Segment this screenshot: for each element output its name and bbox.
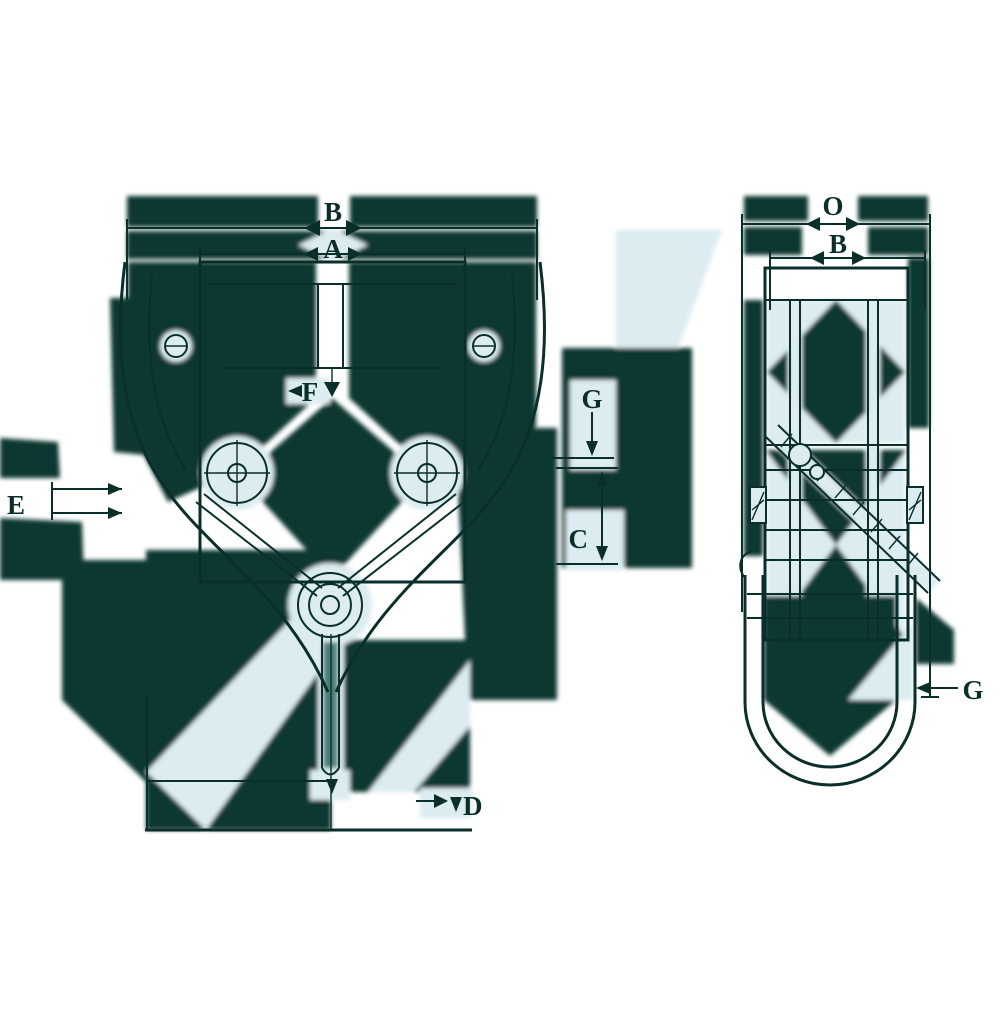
technical-drawing: B A F: [0, 0, 1000, 1023]
side-tab-right: [907, 487, 923, 523]
dim-label-c-front: C: [569, 524, 589, 554]
dim-label-b-front: B: [324, 197, 342, 227]
dim-label-o-side: O: [822, 191, 843, 221]
side-tab-left: [750, 487, 766, 523]
drawing-canvas: B A F: [0, 0, 1000, 1023]
dim-label-g-front: G: [581, 384, 602, 414]
dim-label-a-front: A: [323, 234, 343, 264]
dim-label-d-front: D: [463, 791, 483, 821]
dim-label-f-front: F: [302, 377, 319, 407]
dim-label-e-front: E: [7, 490, 25, 520]
dim-label-g-side: G: [962, 675, 983, 705]
dim-label-b-side: B: [829, 229, 847, 259]
